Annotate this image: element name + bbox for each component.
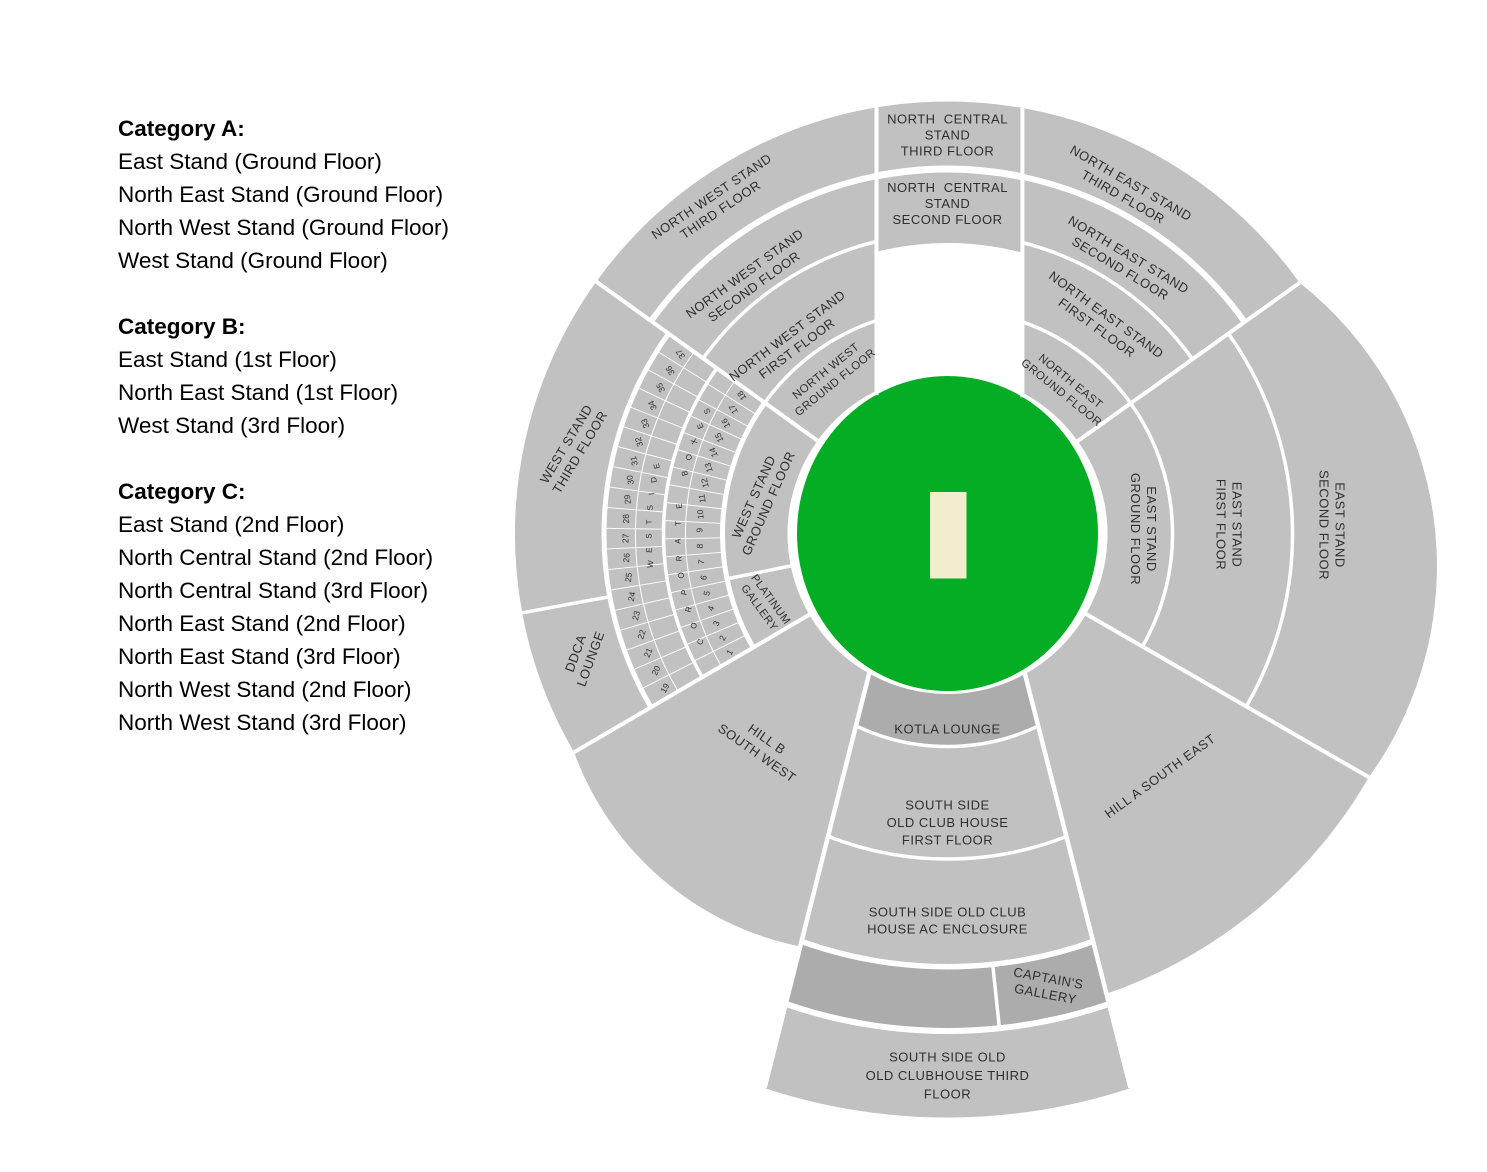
svg-text:11: 11 xyxy=(696,493,707,503)
svg-text:29: 29 xyxy=(622,494,633,505)
svg-text:27: 27 xyxy=(620,533,630,543)
svg-text:28: 28 xyxy=(621,514,631,524)
svg-text:EAST STANDSECOND FLOOR: EAST STANDSECOND FLOOR xyxy=(1317,470,1348,580)
svg-text:EAST STANDGROUND FLOOR: EAST STANDGROUND FLOOR xyxy=(1128,473,1159,585)
svg-text:10: 10 xyxy=(695,509,706,519)
svg-text:30: 30 xyxy=(624,474,635,485)
svg-text:W: W xyxy=(646,560,656,569)
svg-text:E: E xyxy=(675,503,685,509)
svg-text:26: 26 xyxy=(621,552,632,562)
svg-text:9: 9 xyxy=(694,527,704,532)
svg-text:A: A xyxy=(674,538,683,544)
svg-text:EAST STANDFIRST FLOOR: EAST STANDFIRST FLOOR xyxy=(1214,479,1245,570)
svg-text:S: S xyxy=(644,533,653,538)
svg-text:T: T xyxy=(645,519,654,524)
svg-text:25: 25 xyxy=(623,572,634,583)
svg-text:KOTLA LOUNGE: KOTLA LOUNGE xyxy=(894,722,1000,737)
svg-text:8: 8 xyxy=(695,543,705,548)
svg-text:E: E xyxy=(645,547,654,553)
svg-text:T: T xyxy=(674,521,683,526)
svg-text:R: R xyxy=(674,555,684,562)
svg-text:S: S xyxy=(645,505,654,511)
